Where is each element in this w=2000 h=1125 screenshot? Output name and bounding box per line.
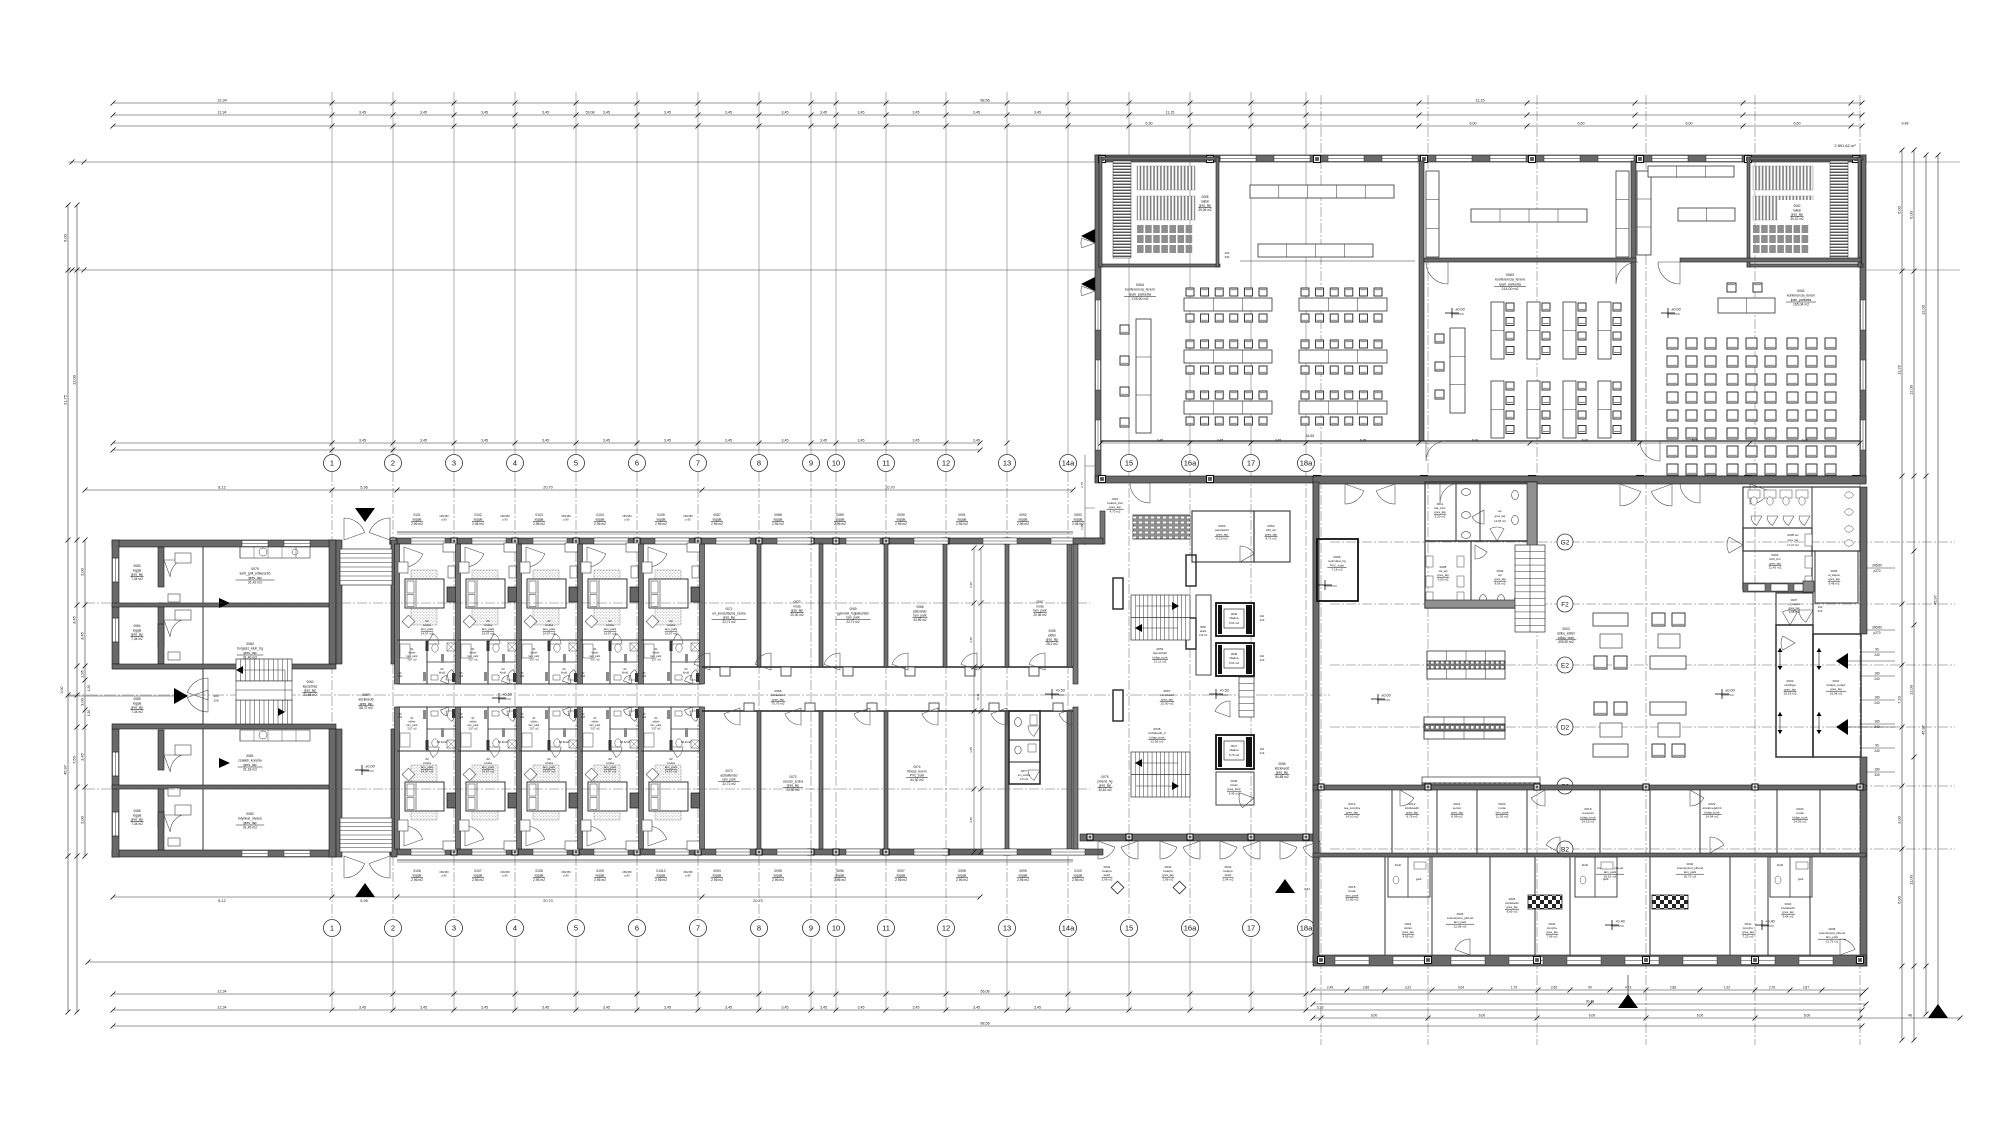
svg-text:5,96: 5,96 xyxy=(360,486,367,490)
svg-text:3,45: 3,45 xyxy=(542,1006,549,1010)
svg-text:lam_park: lam_park xyxy=(407,654,418,658)
svg-text:kőlap_burk: kőlap_burk xyxy=(1558,636,1574,640)
svg-text:2,00: 2,00 xyxy=(80,815,85,824)
svg-text:9: 9 xyxy=(809,924,813,933)
svg-text:7,34 m2: 7,34 m2 xyxy=(131,822,143,826)
svg-text:3,45: 3,45 xyxy=(969,747,973,753)
svg-text:18a: 18a xyxy=(1300,459,1313,468)
svg-text:+0,53: +0,53 xyxy=(502,693,512,697)
svg-text:3,45: 3,45 xyxy=(481,1006,488,1010)
svg-text:213: 213 xyxy=(581,716,586,719)
svg-text:3,45: 3,45 xyxy=(858,439,865,443)
svg-text:10: 10 xyxy=(832,924,840,933)
svg-text:loggia: loggia xyxy=(1074,517,1083,521)
svg-text:2,76: 2,76 xyxy=(1769,986,1775,990)
svg-text:F2: F2 xyxy=(1561,601,1569,608)
svg-text:előtér: előtér xyxy=(470,651,477,655)
svg-text:közlekedő: közlekedő xyxy=(359,697,374,701)
svg-text:3,45: 3,45 xyxy=(969,637,973,643)
svg-text:0077: 0077 xyxy=(1021,769,1027,773)
svg-text:3,45: 3,45 xyxy=(359,1006,366,1010)
svg-text:p:90: p:90 xyxy=(563,518,569,522)
svg-text:3,45: 3,45 xyxy=(782,439,789,443)
svg-text:20,30 m2: 20,30 m2 xyxy=(786,788,800,792)
svg-text:3,04: 3,04 xyxy=(1458,986,1464,990)
svg-text:3,45: 3,45 xyxy=(973,439,980,443)
svg-text:fürdő: fürdő xyxy=(561,671,568,675)
svg-text:01010: 01010 xyxy=(656,869,665,873)
svg-text:3,45: 3,45 xyxy=(481,111,488,115)
svg-text:loggia: loggia xyxy=(774,873,783,877)
svg-text:2,96 m2: 2,96 m2 xyxy=(711,878,723,882)
svg-text:14,97 m2: 14,97 m2 xyxy=(482,769,495,773)
svg-text:0107: 0107 xyxy=(474,869,482,873)
svg-text:+0,40: +0,40 xyxy=(1765,920,1775,924)
svg-text:45,97: 45,97 xyxy=(1921,724,1926,735)
svg-text:0099: 0099 xyxy=(1019,869,1027,873)
svg-text:0061: 0061 xyxy=(1797,289,1805,293)
svg-text:213: 213 xyxy=(520,675,525,678)
svg-text:9,48 m2: 9,48 m2 xyxy=(1829,581,1840,585)
svg-text:3,57 m2: 3,57 m2 xyxy=(468,658,478,662)
svg-text:B2: B2 xyxy=(1561,846,1569,853)
svg-text:konferencia_terem: konferencia_terem xyxy=(1787,294,1815,298)
svg-text:3,45: 3,45 xyxy=(820,1006,827,1010)
svg-text:előtér: előtér xyxy=(470,720,477,724)
svg-text:lam_park: lam_park xyxy=(468,723,479,727)
svg-text:2,96 m2: 2,96 m2 xyxy=(533,522,545,526)
svg-text:±0,00: ±0,00 xyxy=(365,765,374,769)
svg-text:loggia: loggia xyxy=(596,873,605,877)
svg-text:fürdő: fürdő xyxy=(1777,863,1784,867)
svg-text:3,45: 3,45 xyxy=(420,1006,427,1010)
svg-text:14,10 m2: 14,10 m2 xyxy=(1346,815,1359,819)
svg-text:5: 5 xyxy=(574,924,578,933)
svg-text:0063: 0063 xyxy=(1506,273,1514,277)
svg-text:2,96 m2: 2,96 m2 xyxy=(956,522,968,526)
svg-text:0089: 0089 xyxy=(836,513,844,517)
svg-text:0100: 0100 xyxy=(1074,869,1082,873)
svg-text:15,18 m2: 15,18 m2 xyxy=(1784,692,1797,696)
svg-text:16a: 16a xyxy=(1184,924,1197,933)
svg-text:39,06 m2: 39,06 m2 xyxy=(1198,208,1212,212)
svg-text:11,15: 11,15 xyxy=(1166,111,1175,115)
svg-text:9: 9 xyxy=(809,459,813,468)
svg-text:gard.: gard. xyxy=(1416,877,1422,881)
svg-text:0005 wc: 0005 wc xyxy=(1787,533,1799,537)
svg-text:1,95: 1,95 xyxy=(80,669,85,678)
svg-text:loggia: loggia xyxy=(713,873,722,877)
svg-text:p:90: p:90 xyxy=(563,874,569,878)
svg-text:213: 213 xyxy=(1260,618,1265,622)
svg-text:3,33: 3,33 xyxy=(1317,1006,1324,1010)
svg-text:3,00: 3,00 xyxy=(1897,815,1902,824)
svg-text:8,65 m2: 8,65 m2 xyxy=(1507,909,1518,913)
svg-text:2,96 m2: 2,96 m2 xyxy=(711,522,723,526)
svg-text:3,57 m2: 3,57 m2 xyxy=(590,727,600,731)
svg-text:p:90: p:90 xyxy=(624,518,630,522)
svg-text:előtér: előtér xyxy=(653,720,660,724)
svg-text:ipari_parketta: ipari_parketta xyxy=(1791,298,1812,302)
svg-text:1: 1 xyxy=(330,924,334,933)
svg-text:6,00: 6,00 xyxy=(63,233,68,242)
svg-text:gres_lap: gres_lap xyxy=(360,702,373,706)
svg-text:3,57 m2: 3,57 m2 xyxy=(468,727,478,731)
svg-text:2,66: 2,66 xyxy=(1551,986,1557,990)
svg-text:3: 3 xyxy=(452,924,456,933)
svg-text:1,50: 1,50 xyxy=(87,710,91,716)
svg-text:2,94 m2: 2,94 m2 xyxy=(1223,877,1234,881)
svg-text:1: 1 xyxy=(330,459,334,468)
svg-text:20,70: 20,70 xyxy=(543,899,553,903)
svg-text:31,42 m2: 31,42 m2 xyxy=(248,581,262,585)
svg-text:150/150: 150/150 xyxy=(500,870,510,874)
svg-text:2,00: 2,00 xyxy=(80,567,85,576)
svg-text:12: 12 xyxy=(942,924,950,933)
svg-text:előtér: előtér xyxy=(592,720,599,724)
svg-text:3,45: 3,45 xyxy=(973,1006,980,1010)
svg-text:1,52 m2: 1,52 m2 xyxy=(1199,634,1208,637)
svg-text:0095: 0095 xyxy=(774,869,782,873)
svg-text:53,08: 53,08 xyxy=(586,111,595,115)
svg-text:90: 90 xyxy=(1875,648,1879,652)
svg-text:loggia: loggia xyxy=(596,517,605,521)
svg-text:4,95 m2: 4,95 m2 xyxy=(1403,934,1414,938)
svg-text:12,34: 12,34 xyxy=(218,990,227,994)
svg-text:p:90: p:90 xyxy=(685,874,691,878)
svg-text:2,75: 2,75 xyxy=(1080,482,1084,488)
svg-text:0082: 0082 xyxy=(246,812,254,816)
svg-text:4,70 m2: 4,70 m2 xyxy=(1110,509,1121,513)
svg-text:0094: 0094 xyxy=(713,869,721,873)
svg-text:loggia: loggia xyxy=(657,517,666,521)
svg-text:3: 3 xyxy=(452,459,456,468)
svg-text:240: 240 xyxy=(1874,653,1880,657)
svg-text:0105: 0105 xyxy=(657,513,665,517)
svg-text:3,57 m2: 3,57 m2 xyxy=(407,727,417,731)
svg-text:150/150: 150/150 xyxy=(683,514,693,518)
svg-text:5,45 m2: 5,45 m2 xyxy=(1229,791,1240,795)
svg-text:20,36 m2: 20,36 m2 xyxy=(1033,613,1047,617)
svg-text:3,45: 3,45 xyxy=(1157,439,1164,443)
svg-text:213: 213 xyxy=(398,716,403,719)
svg-text:48: 48 xyxy=(1908,1014,1912,1018)
svg-text:3,45: 3,45 xyxy=(603,111,610,115)
svg-text:8,66 m2: 8,66 m2 xyxy=(1495,581,1506,585)
svg-text:0109: 0109 xyxy=(596,869,604,873)
svg-text:44,63: 44,63 xyxy=(1306,434,1315,438)
svg-text:előtér: előtér xyxy=(653,651,660,655)
svg-text:11,26: 11,26 xyxy=(1897,364,1902,374)
svg-text:22,71 m2: 22,71 m2 xyxy=(722,782,736,786)
svg-text:6,00: 6,00 xyxy=(1897,205,1902,214)
svg-text:előtér: előtér xyxy=(531,651,538,655)
svg-text:6,00: 6,00 xyxy=(1794,122,1801,126)
svg-text:84,85 m2: 84,85 m2 xyxy=(1275,775,1289,779)
svg-text:3,45: 3,45 xyxy=(725,111,732,115)
svg-text:loggia: loggia xyxy=(958,517,967,521)
svg-text:6,30: 6,30 xyxy=(1146,122,1153,126)
svg-text:wc: wc xyxy=(1498,509,1502,513)
svg-text:2,49: 2,49 xyxy=(1327,986,1333,990)
svg-text:16a: 16a xyxy=(1184,459,1197,468)
svg-text:7,06 m2: 7,06 m2 xyxy=(1547,934,1558,938)
svg-text:6: 6 xyxy=(635,924,639,933)
svg-text:7: 7 xyxy=(696,924,700,933)
svg-text:loggia: loggia xyxy=(1019,517,1028,521)
svg-text:345/60: 345/60 xyxy=(1872,564,1882,568)
svg-text:90: 90 xyxy=(1875,744,1879,748)
svg-text:liftakna: liftakna xyxy=(1230,616,1239,620)
svg-text:loggia: loggia xyxy=(958,873,967,877)
svg-text:14,03 m2: 14,03 m2 xyxy=(1794,820,1807,824)
svg-text:p:90: p:90 xyxy=(624,874,630,878)
svg-text:3,45: 3,45 xyxy=(725,439,732,443)
svg-text:43,96 m2: 43,96 m2 xyxy=(913,618,927,622)
svg-text:fürdő: fürdő xyxy=(500,671,507,675)
svg-text:6,00: 6,00 xyxy=(1686,122,1693,126)
svg-text:p:90: p:90 xyxy=(441,518,447,522)
svg-text:14,97 m2: 14,97 m2 xyxy=(665,769,678,773)
svg-text:G2: G2 xyxy=(1561,539,1570,546)
svg-text:p:90: p:90 xyxy=(502,518,508,522)
svg-text:gard.: gard. xyxy=(1798,877,1804,881)
svg-text:tároló: tároló xyxy=(1200,629,1207,633)
svg-text:3,45: 3,45 xyxy=(820,439,827,443)
svg-text:12,75 m2: 12,75 m2 xyxy=(1826,939,1839,943)
svg-text:2,96 m2: 2,96 m2 xyxy=(533,878,545,882)
svg-text:4,71 m2: 4,71 m2 xyxy=(1265,537,1276,541)
svg-text:3,45: 3,45 xyxy=(1275,439,1282,443)
svg-text:12,34: 12,34 xyxy=(217,99,227,103)
svg-text:3,45: 3,45 xyxy=(782,111,789,115)
svg-text:12,00: 12,00 xyxy=(1909,684,1914,695)
svg-text:loggia: loggia xyxy=(774,517,783,521)
svg-text:14,97 m2: 14,97 m2 xyxy=(421,631,434,635)
svg-text:240: 240 xyxy=(1874,677,1880,681)
svg-text:11: 11 xyxy=(882,459,890,468)
svg-text:2,96 m2: 2,96 m2 xyxy=(895,522,907,526)
svg-text:E2: E2 xyxy=(1561,662,1569,669)
svg-text:2,96 m2: 2,96 m2 xyxy=(895,878,907,882)
svg-text:213: 213 xyxy=(1260,658,1265,662)
svg-text:p:90: p:90 xyxy=(685,518,691,522)
svg-text:213: 213 xyxy=(459,675,464,678)
svg-text:5,95: 5,95 xyxy=(360,899,367,903)
svg-text:2,96 m2: 2,96 m2 xyxy=(1072,522,1084,526)
svg-text:14,97 m2: 14,97 m2 xyxy=(604,631,617,635)
svg-text:3,5 m2: 3,5 m2 xyxy=(1020,777,1029,781)
svg-text:14,94 m2: 14,94 m2 xyxy=(1706,815,1719,819)
svg-text:2,96 m2: 2,96 m2 xyxy=(1102,877,1113,881)
svg-text:folyóirat_olvasó: folyóirat_olvasó xyxy=(238,817,262,821)
svg-text:0064: 0064 xyxy=(1136,283,1144,287)
svg-text:15: 15 xyxy=(1125,924,1133,933)
svg-text:9,50 m2: 9,50 m2 xyxy=(1438,577,1449,581)
svg-text:6,00: 6,00 xyxy=(1692,439,1699,443)
svg-text:6,78 m2: 6,78 m2 xyxy=(1406,815,1417,819)
svg-text:3,45: 3,45 xyxy=(820,111,827,115)
svg-text:5,76 m2: 5,76 m2 xyxy=(1229,753,1240,757)
svg-text:6,00: 6,00 xyxy=(1371,1014,1378,1018)
svg-text:3,45: 3,45 xyxy=(969,817,973,823)
svg-text:loggia: loggia xyxy=(535,873,544,877)
svg-text:150/150: 150/150 xyxy=(500,514,510,518)
svg-text:12,00: 12,00 xyxy=(1909,384,1914,395)
svg-text:213: 213 xyxy=(642,675,647,678)
svg-text:14,97 m2: 14,97 m2 xyxy=(482,631,495,635)
svg-text:12,34: 12,34 xyxy=(218,1006,227,1010)
svg-text:2,96 m2: 2,96 m2 xyxy=(655,522,667,526)
svg-text:2,96 m2: 2,96 m2 xyxy=(772,522,784,526)
svg-text:5: 5 xyxy=(574,459,578,468)
svg-text:64,30 m2: 64,30 m2 xyxy=(910,778,924,782)
svg-text:loggia: loggia xyxy=(413,873,422,877)
svg-text:0080: 0080 xyxy=(246,642,254,646)
svg-text:0096: 0096 xyxy=(836,869,844,873)
svg-text:p:90: p:90 xyxy=(502,874,508,878)
svg-text:11,00: 11,00 xyxy=(1909,874,1914,884)
svg-text:2,96 m2: 2,96 m2 xyxy=(411,878,423,882)
svg-text:előtér: előtér xyxy=(531,720,538,724)
svg-text:14,97 m2: 14,97 m2 xyxy=(421,769,434,773)
svg-text:fürdő: fürdő xyxy=(1582,863,1589,867)
svg-text:liftakna: liftakna xyxy=(1230,656,1239,660)
svg-text:3,45: 3,45 xyxy=(913,439,920,443)
svg-text:2,96 m2: 2,96 m2 xyxy=(1017,522,1029,526)
svg-text:240: 240 xyxy=(1874,701,1880,705)
svg-text:16,11: 16,11 xyxy=(976,693,980,701)
svg-text:3,57 m2: 3,57 m2 xyxy=(407,658,417,662)
svg-text:330: 330 xyxy=(1874,773,1880,777)
svg-text:0092: 0092 xyxy=(1019,513,1027,517)
svg-text:0098: 0098 xyxy=(958,869,966,873)
svg-text:D2: D2 xyxy=(1561,724,1570,731)
svg-text:214,00 m2: 214,00 m2 xyxy=(1502,287,1519,291)
svg-text:330: 330 xyxy=(1225,255,1230,259)
svg-text:0088: 0088 xyxy=(774,513,782,517)
svg-text:6,00: 6,00 xyxy=(1897,895,1902,904)
svg-text:11,15: 11,15 xyxy=(1475,99,1484,103)
svg-text:6,00: 6,00 xyxy=(1479,1014,1486,1018)
svg-text:0090: 0090 xyxy=(897,513,905,517)
svg-text:0104: 0104 xyxy=(596,513,604,517)
svg-text:0102: 0102 xyxy=(474,513,482,517)
svg-text:3,00: 3,00 xyxy=(60,687,64,694)
svg-text:1,50: 1,50 xyxy=(87,685,91,691)
svg-text:lam_park: lam_park xyxy=(529,723,540,727)
svg-text:300/60: 300/60 xyxy=(1872,626,1882,630)
svg-text:0081: 0081 xyxy=(246,754,254,758)
svg-text:56,08: 56,08 xyxy=(981,990,990,994)
svg-text:3,45: 3,45 xyxy=(359,439,366,443)
svg-text:213: 213 xyxy=(1260,751,1265,755)
svg-text:előtér: előtér xyxy=(409,720,416,724)
svg-text:11,43 m2: 11,43 m2 xyxy=(1769,566,1782,570)
svg-text:0003: 0003 xyxy=(1562,627,1570,631)
svg-text:7,22 m2: 7,22 m2 xyxy=(1743,934,1754,938)
svg-text:gres_lap: gres_lap xyxy=(243,763,256,767)
svg-text:gres_lap: gres_lap xyxy=(1495,514,1506,518)
svg-text:30,22 m2: 30,22 m2 xyxy=(1790,217,1804,221)
svg-text:98,56: 98,56 xyxy=(980,99,990,103)
svg-text:2,87: 2,87 xyxy=(1803,986,1809,990)
svg-text:150/150: 150/150 xyxy=(561,514,571,518)
svg-text:lam_park: lam_park xyxy=(468,654,479,658)
svg-text:2,86: 2,86 xyxy=(1670,986,1676,990)
svg-text:6,00: 6,00 xyxy=(1804,1014,1811,1018)
svg-text:±0,00: ±0,00 xyxy=(1671,308,1680,312)
svg-text:loggia: loggia xyxy=(897,873,906,877)
svg-text:6,00: 6,00 xyxy=(1909,210,1914,219)
svg-text:278,90 m2: 278,90 m2 xyxy=(1132,297,1149,301)
svg-text:12,00: 12,00 xyxy=(1921,304,1926,315)
svg-text:3,45: 3,45 xyxy=(782,1006,789,1010)
svg-text:gres_lap: gres_lap xyxy=(248,576,261,580)
svg-text:12: 12 xyxy=(942,459,950,468)
svg-text:0093: 0093 xyxy=(1074,513,1082,517)
svg-text:loggia: loggia xyxy=(1019,873,1028,877)
svg-text:loggia: loggia xyxy=(657,873,666,877)
svg-text:loggia: loggia xyxy=(897,517,906,521)
svg-text:3,45: 3,45 xyxy=(359,111,366,115)
svg-text:2,96 m2: 2,96 m2 xyxy=(956,878,968,882)
svg-text:előtér: előtér xyxy=(409,651,416,655)
svg-text:6,00: 6,00 xyxy=(1582,439,1589,443)
svg-text:6: 6 xyxy=(635,459,639,468)
svg-text:2,96 m2: 2,96 m2 xyxy=(594,522,606,526)
svg-text:3,45: 3,45 xyxy=(603,1006,610,1010)
svg-text:0106: 0106 xyxy=(413,869,421,873)
svg-text:p270: p270 xyxy=(1873,569,1880,573)
svg-text:228: 228 xyxy=(213,699,218,703)
svg-text:150/150: 150/150 xyxy=(439,870,449,874)
svg-text:loggia: loggia xyxy=(836,873,845,877)
svg-text:családi_konyha: családi_konyha xyxy=(238,759,261,763)
svg-text:14,97 m2: 14,97 m2 xyxy=(543,631,556,635)
svg-text:03 fürdő: 03 fürdő xyxy=(498,740,509,744)
svg-text:20,70: 20,70 xyxy=(885,486,895,490)
svg-text:180: 180 xyxy=(1874,696,1880,700)
svg-text:±0,00: ±0,00 xyxy=(1381,694,1390,698)
svg-text:180: 180 xyxy=(1874,768,1880,772)
svg-text:1,92: 1,92 xyxy=(1724,986,1730,990)
svg-text:58,72 m2: 58,72 m2 xyxy=(359,706,373,710)
svg-text:fürdő: fürdő xyxy=(439,671,446,675)
svg-text:10: 10 xyxy=(832,459,840,468)
svg-text:3,45: 3,45 xyxy=(603,439,610,443)
svg-text:0079: 0079 xyxy=(251,567,259,571)
svg-text:konferencia_terem: konferencia_terem xyxy=(1125,288,1155,292)
svg-text:14a: 14a xyxy=(1062,459,1075,468)
svg-text:0101: 0101 xyxy=(413,513,421,517)
svg-text:180: 180 xyxy=(1874,672,1880,676)
svg-text:7,20: 7,20 xyxy=(1897,695,1902,704)
svg-text:ipari_parketta: ipari_parketta xyxy=(1129,292,1151,296)
svg-text:3,45: 3,45 xyxy=(481,439,488,443)
svg-text:liftakna: liftakna xyxy=(1230,748,1239,752)
svg-text:26,73 m2: 26,73 m2 xyxy=(1684,874,1697,878)
svg-text:3,45: 3,45 xyxy=(664,111,671,115)
svg-text:4: 4 xyxy=(513,459,517,468)
svg-text:0108: 0108 xyxy=(535,869,543,873)
svg-text:8,12: 8,12 xyxy=(218,486,225,490)
svg-text:3,45: 3,45 xyxy=(973,111,980,115)
svg-text:lam_park: lam_park xyxy=(590,654,601,658)
svg-text:21,75: 21,75 xyxy=(63,394,68,405)
svg-text:9,44 m2: 9,44 m2 xyxy=(1783,914,1794,918)
svg-text:loggia: loggia xyxy=(474,873,483,877)
